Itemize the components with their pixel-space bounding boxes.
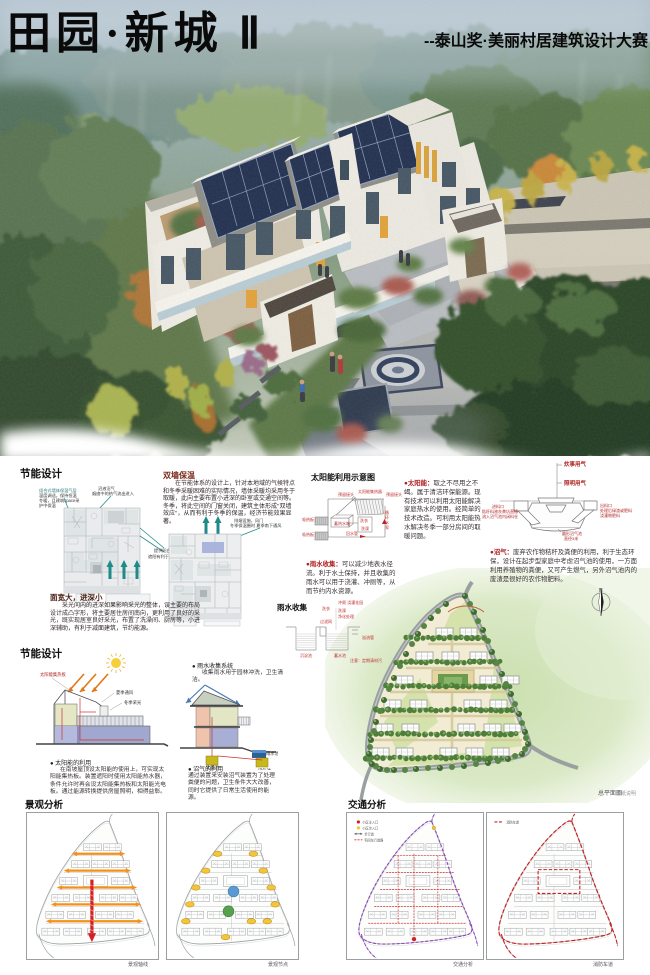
svg-text:炊事用气: 炊事用气 bbox=[564, 460, 587, 468]
svg-text:过滤网: 过滤网 bbox=[320, 618, 332, 624]
svg-text:宅间车行道路: 宅间车行道路 bbox=[364, 837, 384, 842]
svg-text:步行道: 步行道 bbox=[364, 831, 374, 836]
svg-text:照明用气: 照明用气 bbox=[564, 479, 587, 487]
svg-text:夏季通风: 夏季通风 bbox=[116, 689, 134, 696]
svg-text:蓄水池: 蓄水池 bbox=[334, 652, 346, 658]
svg-text:消防车道: 消防车道 bbox=[506, 819, 519, 824]
svg-text:冬季保温圈时 夏季南下通风: 冬季保温圈时 夏季南下通风 bbox=[230, 522, 282, 529]
svg-text:直径3米: 直径3米 bbox=[564, 535, 578, 541]
svg-text:蓄热水箱: 蓄热水箱 bbox=[334, 520, 350, 526]
svg-text:吸热板: 吸热板 bbox=[302, 516, 314, 522]
svg-text:N: N bbox=[599, 588, 603, 594]
svg-text:冲厕 浇灌花园: 冲厕 浇灌花园 bbox=[338, 599, 363, 605]
svg-text:太阳能集热板: 太阳能集热板 bbox=[40, 671, 66, 678]
svg-text:洗澡: 洗澡 bbox=[361, 525, 369, 531]
svg-text:净化处理: 净化处理 bbox=[338, 613, 354, 619]
svg-text:洗澡: 洗澡 bbox=[338, 607, 346, 613]
svg-text:雨水池: 雨水池 bbox=[266, 750, 278, 757]
svg-text:预留接头: 预留接头 bbox=[338, 491, 354, 497]
svg-text:泵: 泵 bbox=[385, 525, 389, 530]
svg-text:吸热板: 吸热板 bbox=[302, 531, 314, 537]
svg-text:冬季采光: 冬季采光 bbox=[124, 699, 142, 706]
svg-text:小区主入口: 小区主入口 bbox=[362, 819, 378, 824]
svg-text:小区次入口: 小区次入口 bbox=[362, 825, 378, 830]
svg-text:太阳能集热器: 太阳能集热器 bbox=[358, 488, 382, 494]
svg-text:回水管: 回水管 bbox=[346, 530, 358, 536]
svg-text:注意：定期清材污垢保护: 注意：定期清材污垢保护 bbox=[350, 657, 382, 663]
svg-text:预留接头: 预留接头 bbox=[386, 491, 402, 497]
svg-text:溢流管: 溢流管 bbox=[362, 634, 374, 640]
svg-text:护中保温: 护中保温 bbox=[39, 502, 57, 509]
svg-text:洗衣: 洗衣 bbox=[322, 605, 330, 611]
svg-text:洗衣: 洗衣 bbox=[360, 517, 368, 523]
svg-text:烟囱中的热气流出进入: 烟囱中的热气流出进入 bbox=[92, 490, 135, 497]
svg-text:浇灌物肥料: 浇灌物肥料 bbox=[600, 512, 620, 518]
svg-text:流入沼气池内闭料仓: 流入沼气池内闭料仓 bbox=[482, 513, 518, 519]
svg-text:沉淀池: 沉淀池 bbox=[300, 652, 312, 658]
